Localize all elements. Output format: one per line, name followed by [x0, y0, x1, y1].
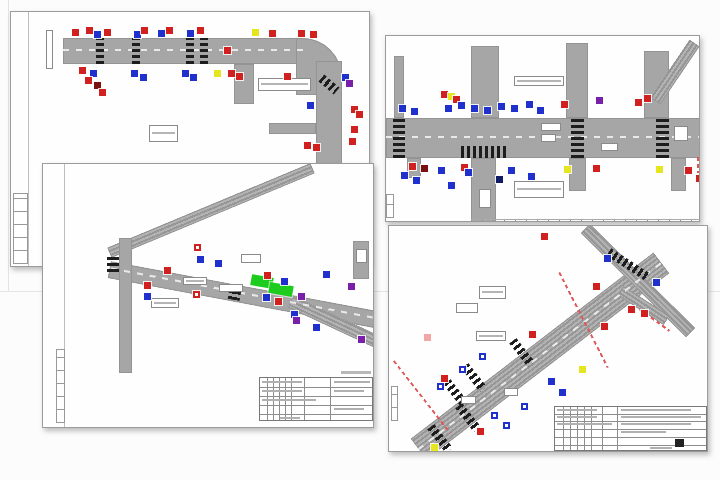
traffic-sign-blue [158, 30, 165, 37]
title-block-text [650, 447, 672, 449]
traffic-sign-red [593, 165, 600, 172]
crosswalk [132, 38, 140, 64]
callout-box [514, 181, 564, 198]
text-smudge [341, 371, 371, 374]
margin-tab-strip [386, 194, 394, 218]
traffic-sign-blue [323, 271, 330, 278]
title-block-line [555, 414, 706, 415]
callout-box [151, 298, 179, 308]
road [269, 123, 316, 134]
traffic-sign-blue [437, 383, 444, 390]
title-block-text [621, 431, 666, 433]
title-block-line [260, 396, 372, 397]
sheet-traffic-plan-bottom-left[interactable] [42, 163, 374, 428]
title-block-line [555, 437, 706, 438]
traffic-sign-red [310, 31, 317, 38]
traffic-sign-navy [496, 176, 503, 183]
title-block-text [557, 409, 597, 411]
inner-frame-line [28, 12, 29, 267]
traffic-sign-red [356, 111, 363, 118]
traffic-sign-blue [511, 105, 518, 112]
title-block-text [262, 381, 302, 383]
traffic-sign-red [275, 298, 282, 305]
traffic-sign-yellow [252, 29, 259, 36]
traffic-sign-red [641, 310, 648, 317]
traffic-sign-red [85, 77, 92, 84]
traffic-sign-blue [604, 255, 611, 262]
callout-box [356, 249, 367, 263]
traffic-sign-blue [445, 105, 452, 112]
traffic-sign-blue [438, 167, 445, 174]
traffic-sign-blue [187, 30, 194, 37]
traffic-sign-red [224, 47, 231, 54]
title-block-text [621, 423, 691, 425]
title-block-text [262, 390, 302, 392]
road [107, 163, 314, 258]
traffic-sign-red [477, 428, 484, 435]
traffic-sign-red [298, 30, 305, 37]
road [569, 158, 586, 191]
traffic-sign-blue [458, 102, 465, 109]
traffic-sign-blue [134, 31, 141, 38]
traffic-sign-yellow [431, 444, 438, 451]
title-block-line [260, 387, 372, 388]
traffic-sign-purple [348, 283, 355, 290]
crosswalk [107, 256, 119, 272]
traffic-sign-red [194, 244, 201, 251]
traffic-sign-pink [424, 334, 431, 341]
traffic-sign-blue [479, 353, 486, 360]
traffic-sign-red [541, 233, 548, 240]
road [316, 61, 342, 171]
traffic-sign-purple [346, 80, 353, 87]
traffic-sign-blue [559, 389, 566, 396]
traffic-sign-blue [548, 378, 555, 385]
traffic-sign-red [304, 142, 311, 149]
traffic-sign-yellow [564, 166, 571, 173]
traffic-sign-blue [307, 102, 314, 109]
callout-box [149, 125, 178, 142]
margin-tab-strip [56, 349, 65, 423]
traffic-sign-purple [596, 97, 603, 104]
traffic-sign-blue [131, 70, 138, 77]
title-block-text [280, 417, 300, 419]
traffic-sign-red [197, 27, 204, 34]
callout-box [541, 134, 556, 142]
traffic-sign-red [104, 29, 111, 36]
traffic-sign-red [351, 126, 358, 133]
traffic-sign-red [269, 30, 276, 37]
traffic-sign-red [236, 73, 243, 80]
traffic-sign-blue [215, 260, 222, 267]
title-block-text [334, 408, 364, 410]
traffic-sign-blue [413, 177, 420, 184]
traffic-sign-red [86, 27, 93, 34]
traffic-sign-red [79, 67, 86, 74]
traffic-sign-blue [653, 279, 660, 286]
crosswalk [96, 38, 104, 64]
traffic-sign-yellow [214, 70, 221, 77]
traffic-sign-red [601, 323, 608, 330]
traffic-sign-red [166, 27, 173, 34]
crosswalk [571, 118, 584, 158]
dimension-ticks [471, 219, 700, 222]
traffic-sign-blue [94, 31, 101, 38]
traffic-sign-blue [448, 182, 455, 189]
traffic-sign-red [644, 95, 651, 102]
margin-tab-strip [13, 193, 28, 264]
traffic-sign-blue [263, 294, 270, 301]
sheet-traffic-plan-bottom-right[interactable] [388, 225, 708, 452]
traffic-sign-blue [491, 412, 498, 419]
callout-box [479, 189, 491, 208]
title-block-line [555, 429, 706, 430]
crosswalk [393, 118, 405, 158]
road [234, 64, 254, 104]
traffic-sign-blue [498, 103, 505, 110]
callout-box [241, 254, 261, 263]
title-block-line [260, 414, 372, 415]
traffic-sign-red [164, 267, 171, 274]
crosswalk [656, 118, 669, 158]
traffic-sign-blue [508, 167, 515, 174]
background-seam-vertical [8, 0, 9, 291]
road [119, 238, 132, 373]
traffic-sign-blue [471, 105, 478, 112]
traffic-sign-red [72, 29, 79, 36]
traffic-sign-blue [528, 173, 535, 180]
traffic-sign-purple [358, 336, 365, 343]
traffic-sign-blue [465, 169, 472, 176]
traffic-sign-blue [503, 422, 510, 429]
crosswalk [186, 38, 194, 64]
title-block-text [334, 381, 370, 383]
road [566, 43, 588, 118]
traffic-sign-red [141, 27, 148, 34]
title-block [259, 377, 373, 421]
title-block [554, 406, 707, 451]
traffic-sign-blue [399, 105, 406, 112]
road [671, 158, 686, 191]
traffic-sign-blue [140, 74, 147, 81]
sheet-traffic-plan-top-right[interactable] [385, 35, 700, 222]
traffic-sign-blue [537, 107, 544, 114]
title-block-text [262, 399, 316, 401]
callout-box [219, 284, 243, 292]
crosswalk [461, 146, 509, 158]
callout-box [46, 30, 53, 69]
traffic-sign-blue [182, 70, 189, 77]
traffic-sign-blue [313, 324, 320, 331]
traffic-sign-blue [281, 278, 288, 285]
traffic-sign-blue [401, 172, 408, 179]
callout-box [461, 396, 476, 404]
traffic-sign-red [685, 167, 692, 174]
traffic-sign-red [228, 70, 235, 77]
traffic-sign-darkred [421, 165, 428, 172]
title-block-text [557, 423, 612, 425]
traffic-sign-red [264, 272, 271, 279]
title-block-line [555, 421, 706, 422]
traffic-sign-red [696, 175, 700, 182]
title-block-text [557, 416, 597, 418]
title-block-text [621, 416, 701, 418]
traffic-sign-darkred [94, 82, 101, 89]
traffic-sign-blue [411, 108, 418, 115]
callout-box [541, 123, 561, 131]
traffic-sign-blue [197, 256, 204, 263]
crosswalk [200, 38, 208, 64]
margin-tab-strip [391, 386, 398, 421]
traffic-sign-red [193, 291, 200, 298]
title-block-stamp [675, 439, 684, 447]
title-block-text [334, 390, 364, 392]
callout-box [514, 76, 564, 86]
traffic-sign-red [99, 89, 106, 96]
callout-box [504, 388, 518, 396]
traffic-sign-red [529, 331, 536, 338]
traffic-sign-purple [298, 293, 305, 300]
callout-box [476, 331, 506, 341]
traffic-sign-red [144, 282, 151, 289]
traffic-sign-blue [90, 70, 97, 77]
traffic-sign-red [313, 144, 320, 151]
traffic-sign-yellow [656, 166, 663, 173]
traffic-sign-blue [459, 366, 466, 373]
traffic-sign-red [628, 306, 635, 313]
traffic-sign-blue [521, 403, 528, 410]
traffic-sign-red [409, 163, 416, 170]
callout-box [674, 126, 688, 141]
traffic-sign-purple [293, 317, 300, 324]
traffic-sign-blue [526, 101, 533, 108]
callout-box [601, 143, 618, 151]
temporary-route-line [393, 360, 451, 434]
traffic-sign-red [561, 101, 568, 108]
traffic-sign-red [635, 99, 642, 106]
traffic-sign-red [349, 138, 356, 145]
callout-box [456, 303, 478, 313]
traffic-sign-red [593, 283, 600, 290]
traffic-sign-yellow [579, 366, 586, 373]
traffic-sign-blue [190, 74, 197, 81]
callout-box [479, 286, 506, 299]
title-block-line [260, 405, 372, 406]
traffic-sign-red [441, 91, 448, 98]
temporary-route-line [697, 157, 699, 173]
title-block-text [621, 409, 691, 411]
traffic-sign-red [441, 375, 448, 382]
callout-box [183, 277, 207, 285]
traffic-sign-red [284, 73, 291, 80]
traffic-sign-blue [144, 293, 151, 300]
traffic-sign-blue [484, 107, 491, 114]
